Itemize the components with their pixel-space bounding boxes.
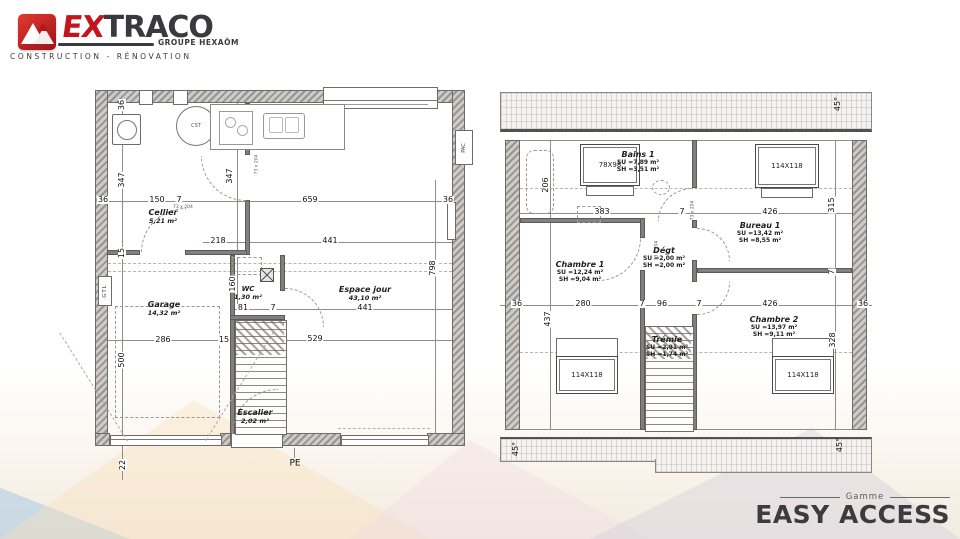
room-label-degt: Dégt SU =2,00 m² SH =2,00 m² [643, 246, 685, 269]
door-size-tag: 73 x 204 [254, 155, 259, 175]
tagline: CONSTRUCTION - RÉNOVATION [10, 52, 226, 61]
dim-line [435, 180, 436, 433]
window-size-label: 114X118 [771, 162, 803, 170]
room-label-garage: Garage14,32 m² [148, 300, 180, 317]
room-label-cellier: Cellier5,21 m² [149, 208, 178, 225]
dim-label: 7 [638, 300, 645, 308]
dim-label: 7 [828, 268, 836, 275]
roof-window: 114X118 [772, 356, 834, 394]
ground-floor-plan: CST GTL PAC 36 347 15 [95, 88, 467, 488]
bay-guide [338, 428, 430, 429]
wall-segment [852, 140, 867, 430]
door-arc [285, 288, 324, 327]
dim-label: 7 [269, 304, 276, 312]
room-label-escalier: Escalier2,02 m² [237, 408, 272, 425]
wall-segment [427, 433, 465, 446]
dim-label: 529 [306, 335, 323, 343]
window-sill [586, 186, 634, 196]
dim-label: 218 [209, 237, 226, 245]
room-label-chambre1: Chambre 1 SU =12,24 m² SH =9,04 m² [556, 260, 605, 283]
dim-label: 500 [118, 351, 126, 368]
dim-label: 798 [429, 259, 437, 276]
dim-label: 315 [828, 196, 836, 213]
room-label-bureau1: Bureau 1 SU =13,42 m² SH =8,55 m² [737, 221, 783, 244]
series-name: EASY ACCESS [748, 500, 950, 529]
room-label-chambre2: Chambre 2 SU =13,97 m² SH =9,11 m² [750, 315, 799, 338]
dim-label: 36 [442, 196, 454, 204]
window [173, 90, 188, 105]
divider-line [780, 497, 840, 498]
floor-outline [520, 140, 852, 141]
bay-window [341, 435, 429, 446]
dim-label: 36 [511, 300, 523, 308]
dim-label: 22 [119, 459, 127, 471]
entry-label: PE [288, 460, 301, 469]
dim-label: 15 [118, 247, 126, 259]
roof-angle-label: 45° [836, 437, 844, 453]
heat-pump-unit: PAC [455, 130, 473, 165]
dim-label: 347 [226, 167, 234, 184]
dim-label: 659 [301, 196, 318, 204]
door-arc [697, 282, 730, 315]
logo-underline [58, 43, 154, 46]
pac-label: PAC [461, 143, 467, 153]
door-size-tag: 73 x 204 [173, 205, 193, 210]
upper-floor-plan: 45° 45° 45° 78X98 114X118 [500, 88, 872, 478]
dim-label: 383 [593, 208, 610, 216]
room-label-tremie: Trémie SU =2,91 m² SH =1,74 m² [646, 335, 688, 358]
door-arc [697, 228, 730, 261]
dim-label: 280 [574, 300, 591, 308]
partition [692, 140, 697, 188]
dim-label: 7 [175, 196, 182, 204]
door-arc [598, 238, 641, 281]
extraco-logo: EXTRACO GROUPE HEXAÔM CONSTRUCTION - RÉN… [10, 10, 240, 70]
window-size-label: 114X118 [787, 371, 819, 379]
toilet [652, 180, 670, 195]
window-sill [556, 338, 618, 358]
dim-label: 426 [761, 208, 778, 216]
room-label-espace-jour: Espace jour43,10 m² [339, 285, 391, 302]
dim-label: 160 [229, 275, 237, 292]
dim-label: 150 [148, 196, 165, 204]
wall-segment [95, 433, 110, 446]
roof-angle-label: 45° [834, 96, 842, 112]
stair-hatch [236, 321, 284, 355]
partition [185, 250, 247, 255]
wall-segment [281, 433, 341, 446]
roof-band [500, 92, 872, 132]
dim-label: 286 [154, 336, 171, 344]
window-sill [772, 338, 834, 358]
dim-label: 206 [542, 176, 550, 193]
brand-prefix: EX [60, 10, 107, 45]
dim-label: 81 [237, 304, 249, 312]
divider-line [890, 497, 950, 498]
window-size-label: 114X118 [571, 371, 603, 379]
roof-window: 114X118 [556, 356, 618, 394]
window [139, 90, 153, 105]
dim-label: 15 [218, 336, 230, 344]
radiator [447, 202, 456, 240]
dim-label: 36 [97, 196, 109, 204]
dim-label: 7 [678, 208, 685, 216]
post-column [260, 268, 274, 282]
dim-line [500, 305, 872, 306]
door-size-tag: 73 x 204 [654, 241, 659, 261]
dim-label: 347 [118, 171, 126, 188]
gtl-label: GTL [102, 284, 108, 298]
wc-closet [232, 257, 262, 275]
window-sill [761, 188, 813, 198]
dim-label: 441 [356, 304, 373, 312]
dim-label: 441 [321, 237, 338, 245]
floorplan-sheet: EXTRACO GROUPE HEXAÔM CONSTRUCTION - RÉN… [0, 0, 960, 539]
gtl-box: GTL [98, 276, 112, 306]
door-size-tag: 73 x 204 [690, 201, 695, 221]
extraco-logo-icon [18, 14, 56, 50]
washing-machine-icon [112, 114, 141, 145]
dim-label: 7 [695, 300, 702, 308]
dim-line [835, 140, 836, 430]
room-label-bains1: Bains 1 SU =7,89 m² SH =3,51 m² [617, 150, 659, 173]
roof-band [655, 459, 872, 473]
dim-line [235, 309, 453, 310]
dim-label: 328 [829, 331, 837, 348]
partition [245, 200, 250, 255]
entry-arrow [294, 448, 295, 458]
garage-clearance [115, 306, 220, 418]
partition [640, 218, 645, 238]
dim-label: 96 [656, 300, 668, 308]
dim-label: 36 [857, 300, 869, 308]
dim-line [122, 90, 123, 480]
partition [692, 220, 697, 228]
roof-window: 114X118 [755, 144, 819, 188]
dim-label: 36 [118, 99, 126, 111]
room-label-wc: WC1,30 m² [234, 285, 262, 301]
roof-angle-label: 45° [512, 441, 520, 457]
door-arc [201, 156, 246, 201]
dim-label: 437 [544, 310, 552, 327]
entry-door [231, 433, 283, 448]
partition [280, 255, 285, 291]
wall-segment [505, 140, 520, 430]
dim-label: 426 [761, 300, 778, 308]
kitchen-counter [210, 104, 345, 150]
group-label: GROUPE HEXAÔM [158, 38, 239, 47]
